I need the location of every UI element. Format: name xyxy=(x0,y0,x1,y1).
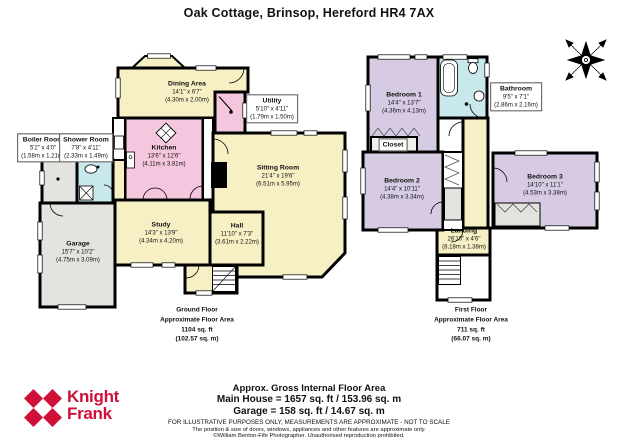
room-label-bedroom-2: Bedroom 2 14'4" x 10'11" (4.38m x 3.34m) xyxy=(380,176,424,201)
floor-area-sqm: (66.07 sq. m) xyxy=(434,335,508,345)
room-name: Utility xyxy=(250,96,294,105)
room-dims-imperial: 5'10" x 4'11" xyxy=(250,105,294,113)
floor-name: First Floor xyxy=(434,306,508,316)
room-label-sitting-room: Sitting Room 21'4" x 19'6" (6.51m x 5.95… xyxy=(256,163,300,188)
room-name: Bedroom 3 xyxy=(523,172,567,181)
room-dims-metric: (4.38m x 3.34m) xyxy=(380,194,424,202)
bathtub-icon xyxy=(441,60,458,96)
room-dims-metric: (8.18m x 1.38m) xyxy=(442,244,486,252)
floor-area-caption: Approximate Floor Area xyxy=(160,315,234,325)
room-name: Shower Room xyxy=(63,135,109,144)
room-label-utility: Utility 5'10" x 4'11" (1.79m x 1.50m) xyxy=(246,94,298,123)
footer-area-summary: Approx. Gross Internal Floor Area Main H… xyxy=(0,383,618,440)
room-dims-imperial: 14'10" x 11'1" xyxy=(523,181,567,189)
room-dims-metric: (3.61m x 2.22m) xyxy=(215,239,259,247)
room-dims-metric: (2.86m x 2.16m) xyxy=(494,102,538,110)
room-dims-metric: (1.79m x 1.50m) xyxy=(250,114,294,122)
room-label-landing: Landing 26'10" x 4'6" (8.18m x 1.38m) xyxy=(442,226,486,251)
room-dims-metric: (4.11m x 3.81m) xyxy=(142,161,185,169)
gross-area-title: Approx. Gross Internal Floor Area xyxy=(0,383,618,394)
room-name: Sitting Room xyxy=(256,163,300,172)
floor-area-sqft: 1104 sq. ft xyxy=(160,325,234,335)
room-dims-metric: (4.36m x 4.13m) xyxy=(382,108,426,116)
room-dims-imperial: 7'8" x 4'11" xyxy=(63,144,109,152)
floor-name: Ground Floor xyxy=(160,306,234,316)
room-dims-imperial: 14'3" x 13'9" xyxy=(139,229,183,237)
room-label-bathroom: Bathroom 9'5" x 7'1" (2.86m x 2.16m) xyxy=(490,82,542,111)
room-dims-imperial: 13'6" x 12'6" xyxy=(142,152,185,160)
room-name: Study xyxy=(139,220,183,229)
room-dims-imperial: 14'4" x 10'11" xyxy=(380,185,424,193)
floorplan-drawing xyxy=(0,0,618,437)
compass-icon xyxy=(566,40,606,80)
toilet-icon xyxy=(85,165,97,173)
room-dims-metric: (4.53m x 3.38m) xyxy=(523,190,567,198)
main-house-area: Main House = 1657 sq. ft / 153.96 sq. m xyxy=(0,394,618,406)
disclaimer-line-1: FOR ILLUSTRATIVE PURPOSES ONLY, MEASUREM… xyxy=(0,419,618,426)
room-dims-metric: (4.75m x 3.09m) xyxy=(56,257,100,265)
ground-floor-area-label: Ground Floor Approximate Floor Area 1104… xyxy=(160,306,234,345)
first-floor-area-label: First Floor Approximate Floor Area 711 s… xyxy=(434,306,508,345)
room-label-closet: Closet xyxy=(379,138,408,151)
room-dims-imperial: 15'7" x 10'2" xyxy=(56,248,100,256)
room-dims-metric: (2.33m x 1.49m) xyxy=(63,153,109,161)
room-name: Hall xyxy=(215,221,259,230)
garage-area: Garage = 158 sq. ft / 14.67 sq. m xyxy=(0,406,618,418)
room-name: Dining Area xyxy=(165,79,209,88)
room-dims-imperial: 26'10" x 4'6" xyxy=(442,235,486,243)
room-label-bedroom-1: Bedroom 1 14'4" x 13'7" (4.36m x 4.13m) xyxy=(382,90,426,115)
room-dims-metric: (4.34m x 4.20m) xyxy=(139,238,183,246)
room-name: Garage xyxy=(56,239,100,248)
room-dims-imperial: 14'1" x 6'7" xyxy=(165,88,209,96)
chimney-block xyxy=(211,162,227,188)
room-name: Bathroom xyxy=(494,84,538,93)
room-name: Bedroom 1 xyxy=(382,90,426,99)
sink-icon xyxy=(474,91,484,101)
room-dims-imperial: 9'5" x 7'1" xyxy=(494,93,538,101)
room-name: Bedroom 2 xyxy=(380,176,424,185)
sink-icon xyxy=(115,136,124,149)
room-label-dining-area: Dining Area 14'1" x 6'7" (4.30m x 2.00m) xyxy=(165,79,209,104)
room-label-kitchen: Kitchen 13'6" x 12'6" (4.11m x 3.81m) xyxy=(142,143,185,168)
room-dims-imperial: 14'4" x 13'7" xyxy=(382,99,426,107)
room-dims-metric: (6.51m x 5.95m) xyxy=(256,181,300,189)
room-name: Closet xyxy=(383,140,404,149)
floor-area-sqft: 711 sq. ft xyxy=(434,325,508,335)
room-name: Kitchen xyxy=(142,143,185,152)
page-title: Oak Cottage, Brinsop, Hereford HR4 7AX xyxy=(0,6,618,20)
room-dims-metric: (4.30m x 2.00m) xyxy=(165,97,209,105)
room-dims-imperial: 21'4" x 19'6" xyxy=(256,172,300,180)
room-label-hall: Hall 11'10" x 7'3" (3.61m x 2.22m) xyxy=(215,221,259,246)
room-label-garage: Garage 15'7" x 10'2" (4.75m x 3.09m) xyxy=(56,239,100,264)
room-label-shower-room: Shower Room 7'8" x 4'11" (2.33m x 1.49m) xyxy=(59,133,113,162)
floor-area-caption: Approximate Floor Area xyxy=(434,315,508,325)
floor-area-sqm: (102.57 sq. m) xyxy=(160,335,234,345)
room-label-bedroom-3: Bedroom 3 14'10" x 11'1" (4.53m x 3.38m) xyxy=(523,172,567,197)
room-dims-imperial: 11'10" x 7'3" xyxy=(215,230,259,238)
room-label-study: Study 14'3" x 13'9" (4.34m x 4.20m) xyxy=(139,220,183,245)
room-name: Landing xyxy=(442,226,486,235)
sink-icon xyxy=(127,152,135,168)
